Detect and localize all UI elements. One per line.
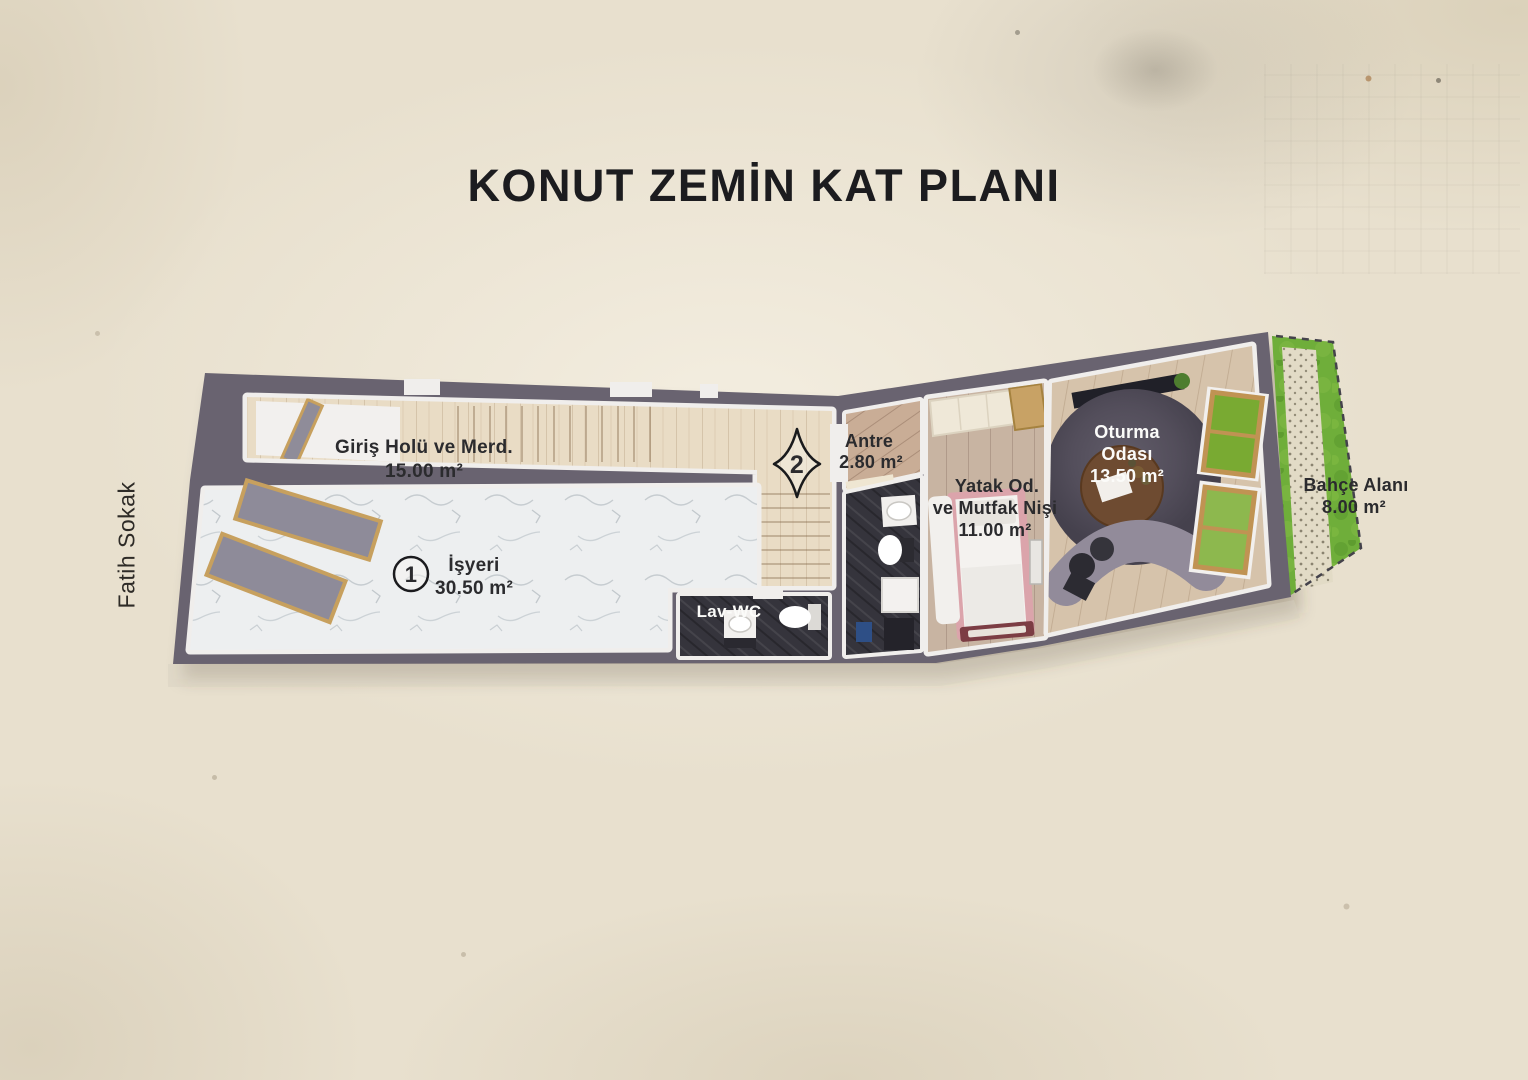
unit-marker-number: 1 — [405, 562, 418, 587]
sink-icon — [881, 495, 917, 527]
label-giris-area: 15.00 m² — [385, 461, 463, 482]
floor-plan: 1 2 Giriş Holü ve Merd. 15.00 m² İşyeri … — [0, 0, 1528, 1080]
label-oturma-line1: Oturma — [1094, 422, 1160, 442]
label-giris-name: Giriş Holü ve Merd. — [335, 437, 513, 458]
label-bahce-area: 8.00 m² — [1322, 497, 1386, 517]
room-lav-wc — [680, 589, 828, 656]
unit-1-marker: 1 — [394, 557, 428, 591]
label-antre-area: 2.80 m² — [839, 452, 903, 472]
bucket — [856, 622, 872, 642]
label-bahce-name: Bahçe Alanı — [1303, 475, 1408, 495]
section-marker-number: 2 — [790, 451, 804, 479]
room-bathroom — [846, 478, 920, 655]
label-yatak-line1: Yatak Od. — [955, 476, 1039, 496]
label-antre-name: Antre — [845, 431, 893, 451]
label-isyeri-name: İşyeri — [448, 555, 499, 576]
sofa-cushion — [1090, 537, 1114, 561]
garden-window — [1197, 387, 1269, 482]
label-isyeri-area: 30.50 m² — [435, 578, 513, 599]
wall-notch — [404, 379, 440, 395]
garden-window — [1189, 480, 1262, 579]
radiator — [1030, 540, 1042, 584]
label-oturma-line2: Odası — [1101, 444, 1152, 464]
door-gap — [753, 589, 783, 599]
label-yatak-line2: ve Mutfak Nişi — [933, 498, 1058, 518]
label-oturma-area: 13.50 m² — [1090, 466, 1164, 486]
cabinet — [884, 618, 914, 650]
toilet-icon — [878, 535, 914, 565]
washer-icon — [882, 578, 918, 612]
room-oturma-odasi — [1045, 346, 1269, 633]
plant-icon — [1174, 373, 1190, 389]
wall-notch — [700, 384, 718, 398]
label-lavwc-name: Lav-WC — [697, 602, 762, 621]
wall-notch — [610, 382, 652, 397]
label-yatak-area: 11.00 m² — [958, 520, 1031, 540]
wardrobe — [1009, 384, 1047, 430]
